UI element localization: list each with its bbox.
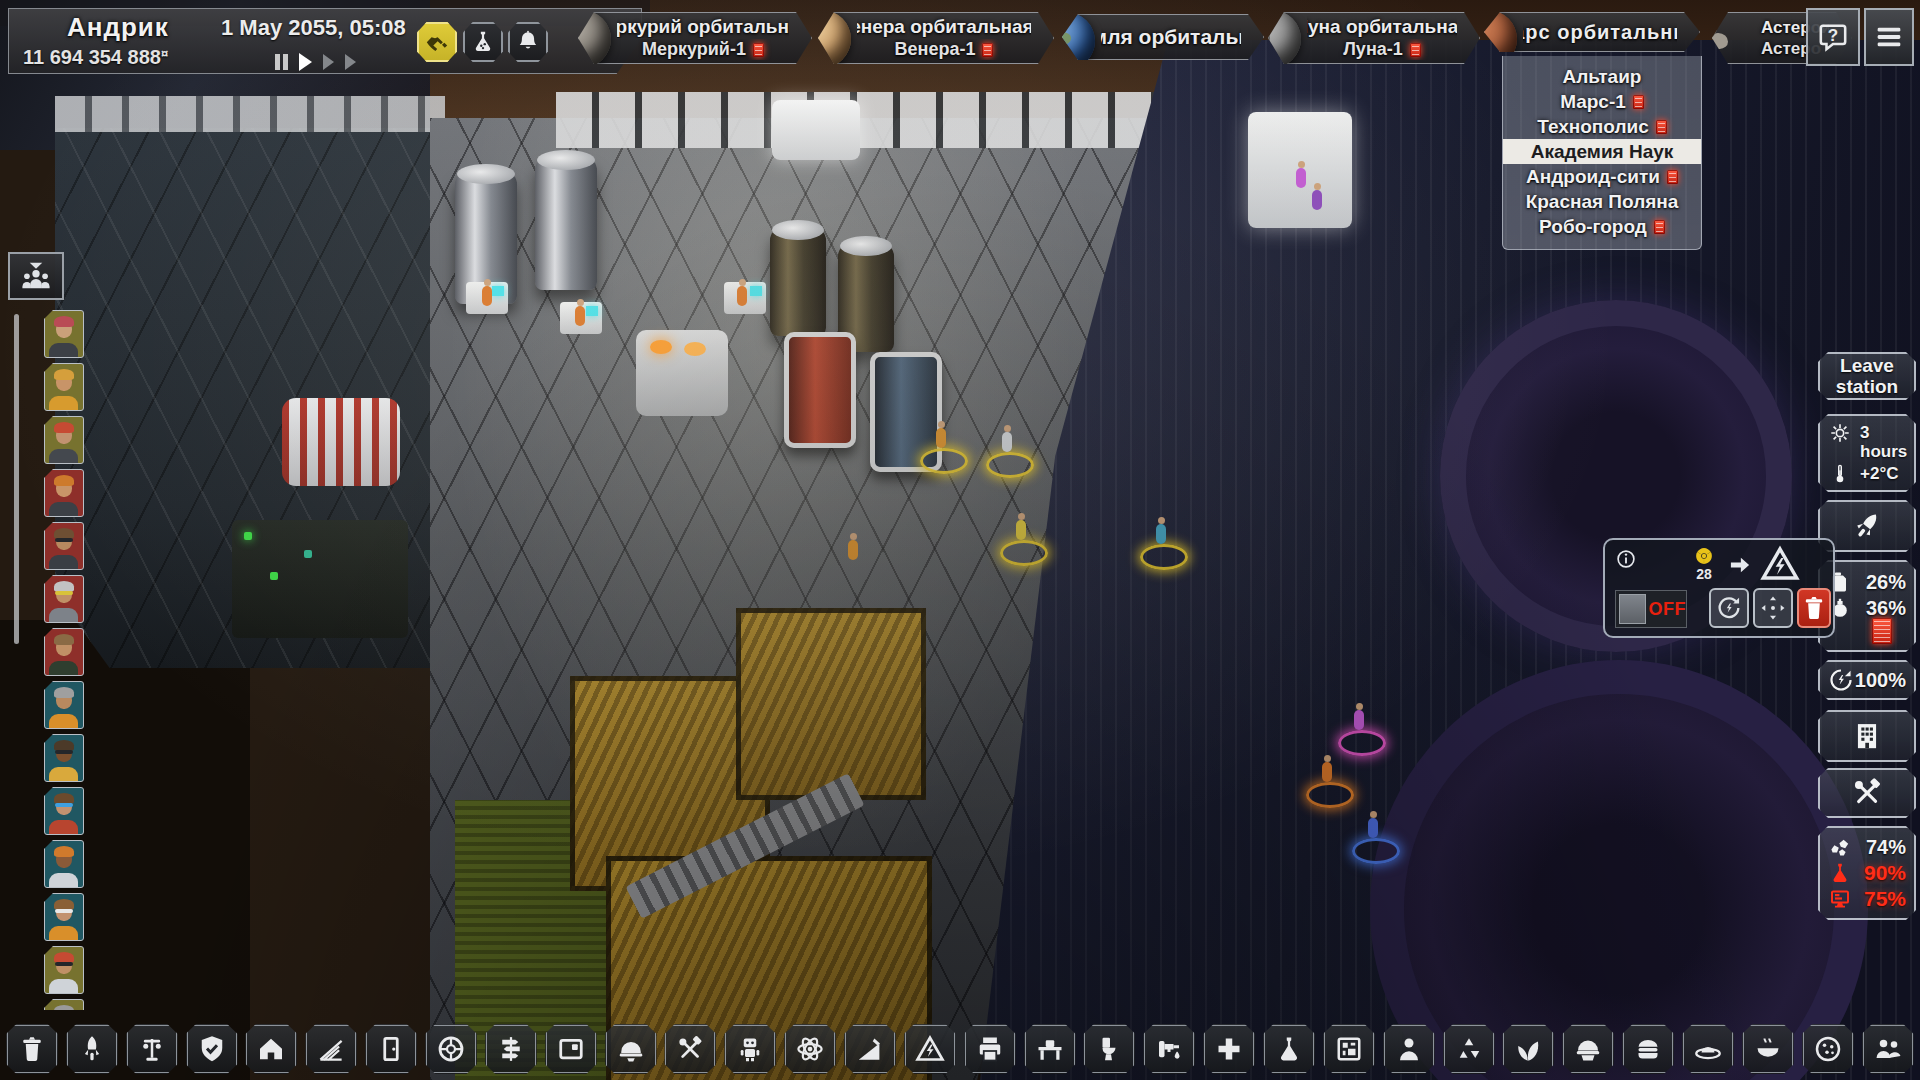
crew-pair-icon [1873,1034,1903,1064]
rocket-icon [1850,509,1884,543]
thermometer-icon [1828,463,1852,485]
crew-portrait-11[interactable] [44,840,84,888]
robot-icon [735,1034,765,1064]
toolbar-airlock-button[interactable] [425,1024,477,1074]
info-icon[interactable] [1615,548,1637,570]
station-name: Земля орбитальная [1101,25,1241,49]
time-controls [275,53,356,71]
game-datetime: 1 May 2055, 05:08 [221,15,406,41]
electric-hazard-icon [915,1034,945,1064]
shield-icon [197,1034,227,1064]
fast-forward-icon[interactable] [345,54,356,70]
demolish-button[interactable] [1797,588,1831,628]
alert-icon [753,43,764,57]
house-icon [256,1034,286,1064]
plant-leaf-icon [1513,1034,1543,1064]
airlock-icon [436,1034,466,1064]
station-tab-venus[interactable]: Венера орбитальнаяВенера-1 [818,12,1054,64]
toolbar-laboratory-button[interactable] [1263,1024,1315,1074]
signpost-icon [496,1034,526,1064]
bell-icon [515,29,541,55]
fast-forward-icon[interactable] [323,54,334,70]
energy-panel[interactable]: 100% [1818,660,1916,700]
substation-name[interactable]: Меркурий-1 [617,39,789,60]
dropdown-item-3[interactable]: Технополис [1503,114,1701,139]
dropdown-item-7[interactable]: Робо-город [1503,214,1701,239]
station-tab-mercury[interactable]: Меркурий орбитальныйМеркурий-1 [578,12,812,64]
toolbar-construction-helmet-button[interactable] [605,1024,657,1074]
crew-scrollbar[interactable] [14,314,19,644]
toolbar-waste-bin-button[interactable] [6,1024,58,1074]
build-toolbar [6,1024,1914,1076]
notifications-button[interactable] [508,22,548,62]
toolbar-robot-button[interactable] [724,1024,776,1074]
research-button[interactable] [463,22,503,62]
pizza-icon [1813,1034,1843,1064]
handshake-icon [424,29,450,55]
cycle-power-button[interactable] [1709,588,1749,628]
avatar [49,873,78,888]
ore-percent: 74% [1866,836,1906,859]
crew-group-icon [19,259,53,293]
toolbar-crew-pair-button[interactable] [1862,1024,1914,1074]
crew-portrait-3[interactable] [44,416,84,464]
repair-button[interactable] [1818,768,1916,818]
toolbar-signpost-button[interactable] [485,1024,537,1074]
station-name: Луна орбитальная [1307,16,1457,38]
toilet-icon [1094,1034,1124,1064]
crew-portrait-10[interactable] [44,787,84,835]
avatar [49,396,78,411]
avatar [49,714,78,729]
station-name: Венера орбитальная [857,16,1031,38]
construction-helmet-icon [616,1034,646,1064]
toolbar-electric-hazard-button[interactable] [904,1024,956,1074]
crew-list-toggle-button[interactable] [8,252,64,300]
question-icon: ? [1816,20,1850,54]
avatar [49,767,78,782]
power-toggle[interactable]: OFF [1615,590,1687,628]
waste-bin-icon [17,1034,47,1064]
block-arrow-icon [1725,552,1755,578]
toolbar-burger-button[interactable] [1622,1024,1674,1074]
toolbar-person-button[interactable] [1383,1024,1435,1074]
qr-display-icon [1334,1034,1364,1064]
railway-ramp-icon [316,1034,346,1064]
alert-icon [1656,120,1667,134]
crew-portrait-13[interactable] [44,946,84,994]
menu-icon [1872,20,1906,54]
resource-alert-icon [1872,618,1892,644]
avatar [49,979,78,994]
avatar [49,555,78,570]
toolbar-repair-tools-button[interactable] [664,1024,716,1074]
machine-control-popup: 28 OFF [1603,538,1835,638]
oxygen-percent: 36% [1866,597,1906,620]
crew-portrait-5[interactable] [44,522,84,570]
toolbar-street-lamp-button[interactable] [126,1024,178,1074]
crew-portrait-1[interactable] [44,310,84,358]
alert-icon [982,43,993,57]
food-storage-icon [1573,1034,1603,1064]
station-name: Марс орбитальный [1523,21,1677,44]
game-screen: Андрик 11 694 354 888¤ 1 May 2055, 05:08… [0,0,1920,1080]
substation-name[interactable]: Луна-1 [1307,39,1457,60]
toolbar-qr-display-button[interactable] [1323,1024,1375,1074]
screen-panel-icon [556,1034,586,1064]
dropdown-item-5[interactable]: Андроид-сити [1503,164,1701,189]
electric-hazard-icon [1759,544,1801,584]
toolbar-door-button[interactable] [365,1024,417,1074]
alert-icon [1633,95,1644,109]
build-button[interactable] [1818,710,1916,762]
radiation-icon [1691,544,1717,568]
toolbar-soup-bowl-button[interactable] [1742,1024,1794,1074]
toolbar-plant-leaf-button[interactable] [1502,1024,1554,1074]
radiation-status: 28 [1689,544,1719,581]
recycle-icon [1454,1034,1484,1064]
repair-tools-icon [1850,776,1884,810]
move-arrows-icon [1759,594,1787,622]
fuel-percent: 26% [1866,571,1906,594]
alert-icon [1667,170,1678,184]
meal-plate-icon [1693,1034,1723,1064]
station-tab-mars[interactable]: Марс орбитальный [1484,12,1700,52]
toolbar-printer-button[interactable] [964,1024,1016,1074]
toolbar-terrain-ramp-button[interactable] [844,1024,896,1074]
toolbar-medical-cross-button[interactable] [1203,1024,1255,1074]
toolbar-toilet-button[interactable] [1083,1024,1135,1074]
rocket-icon [77,1034,107,1064]
toolbar-recycle-button[interactable] [1443,1024,1495,1074]
alert-icon [1410,43,1421,57]
person-icon [1394,1034,1424,1064]
substation-name[interactable]: Венера-1 [857,39,1031,60]
crew-portrait-14[interactable] [44,999,84,1010]
crew-portrait-7[interactable] [44,628,84,676]
player-header: Андрик 11 694 354 888¤ 1 May 2055, 05:08 [8,8,642,74]
avatar [49,343,78,358]
toolbar-rocket-button[interactable] [66,1024,118,1074]
production-stats-panel[interactable]: 74% 90% 75% [1818,826,1916,920]
ore-rocks-icon [1828,835,1852,859]
water-pump-icon [1154,1034,1184,1064]
crew-portrait-6[interactable] [44,575,84,623]
crew-portrait-2[interactable] [44,363,84,411]
temperature-value: +2°C [1860,464,1898,484]
science-percent: 90% [1864,861,1906,885]
production-monitor-icon [1828,887,1852,911]
avatar [49,820,78,835]
toolbar-water-pump-button[interactable] [1143,1024,1195,1074]
toolbar-meal-plate-button[interactable] [1682,1024,1734,1074]
avatar [49,449,78,464]
mars-station-dropdown: АльтаирМарс-1ТехнополисАкадемия НаукАндр… [1502,56,1702,250]
cycle-power-icon [1715,594,1743,622]
toolbar-food-storage-button[interactable] [1562,1024,1614,1074]
toolbar-workbench-button[interactable] [1024,1024,1076,1074]
move-machine-button[interactable] [1753,588,1793,628]
help-button[interactable]: ? [1806,8,1860,66]
building-icon [1850,719,1884,753]
play-icon[interactable] [299,53,312,71]
production-percent: 75% [1864,887,1906,911]
repair-tools-icon [675,1034,705,1064]
toolbar-shield-button[interactable] [186,1024,238,1074]
avatar [49,926,78,941]
burger-icon [1633,1034,1663,1064]
science-flask-icon [1828,861,1852,885]
power-state-label: OFF [1649,599,1687,620]
toolbar-pizza-button[interactable] [1802,1024,1854,1074]
research-flask-icon [470,29,496,55]
station-tab-moon[interactable]: Луна орбитальнаяЛуна-1 [1268,12,1480,64]
trade-button[interactable] [417,22,457,62]
dropdown-item-4[interactable]: Академия Наук [1503,139,1701,164]
pause-icon[interactable] [275,54,288,70]
atom-icon [795,1034,825,1064]
toolbar-house-button[interactable] [245,1024,297,1074]
toggle-knob [1619,594,1646,624]
crew-portrait-4[interactable] [44,469,84,517]
dropdown-item-6[interactable]: Красная Поляна [1503,189,1701,214]
money-value: 11 694 354 888¤ [23,46,168,69]
workbench-icon [1035,1034,1065,1064]
player-name: Андрик [67,12,169,43]
terrain-ramp-icon [855,1034,885,1064]
crew-portrait-12[interactable] [44,893,84,941]
station-tab-earth[interactable]: Земля орбитальная [1062,14,1264,60]
menu-button[interactable] [1864,8,1914,66]
door-icon [376,1034,406,1064]
environment-panel[interactable]: 3 hours +2°C [1818,414,1916,492]
toolbar-screen-panel-button[interactable] [545,1024,597,1074]
medical-cross-icon [1214,1034,1244,1064]
avatar [49,608,78,623]
station-name: Меркурий орбитальный [617,16,789,38]
avatar [49,661,78,676]
dropdown-item-2[interactable]: Марс-1 [1503,89,1701,114]
wait-duration-unit: hours [1860,442,1907,462]
soup-bowl-icon [1753,1034,1783,1064]
alert-icon [1654,220,1665,234]
leave-station-button[interactable]: Leave station [1818,352,1916,400]
printer-icon [975,1034,1005,1064]
sun-icon [1828,422,1852,444]
crew-portrait-list [44,310,84,1010]
radiation-count: 28 [1689,568,1719,581]
energy-percent: 100% [1855,669,1906,692]
trash-icon [1800,594,1828,622]
avatar [49,502,78,517]
crew-portrait-9[interactable] [44,734,84,782]
laboratory-icon [1274,1034,1304,1064]
svg-text:?: ? [1828,26,1838,45]
dropdown-item-1[interactable]: Альтаир [1503,64,1701,89]
toolbar-railway-ramp-button[interactable] [305,1024,357,1074]
currency-icon: ¤ [161,46,168,61]
energy-circle-icon [1828,667,1854,693]
crew-portrait-8[interactable] [44,681,84,729]
street-lamp-icon [137,1034,167,1064]
toolbar-atom-button[interactable] [784,1024,836,1074]
wait-duration-value: 3 [1860,423,1869,443]
